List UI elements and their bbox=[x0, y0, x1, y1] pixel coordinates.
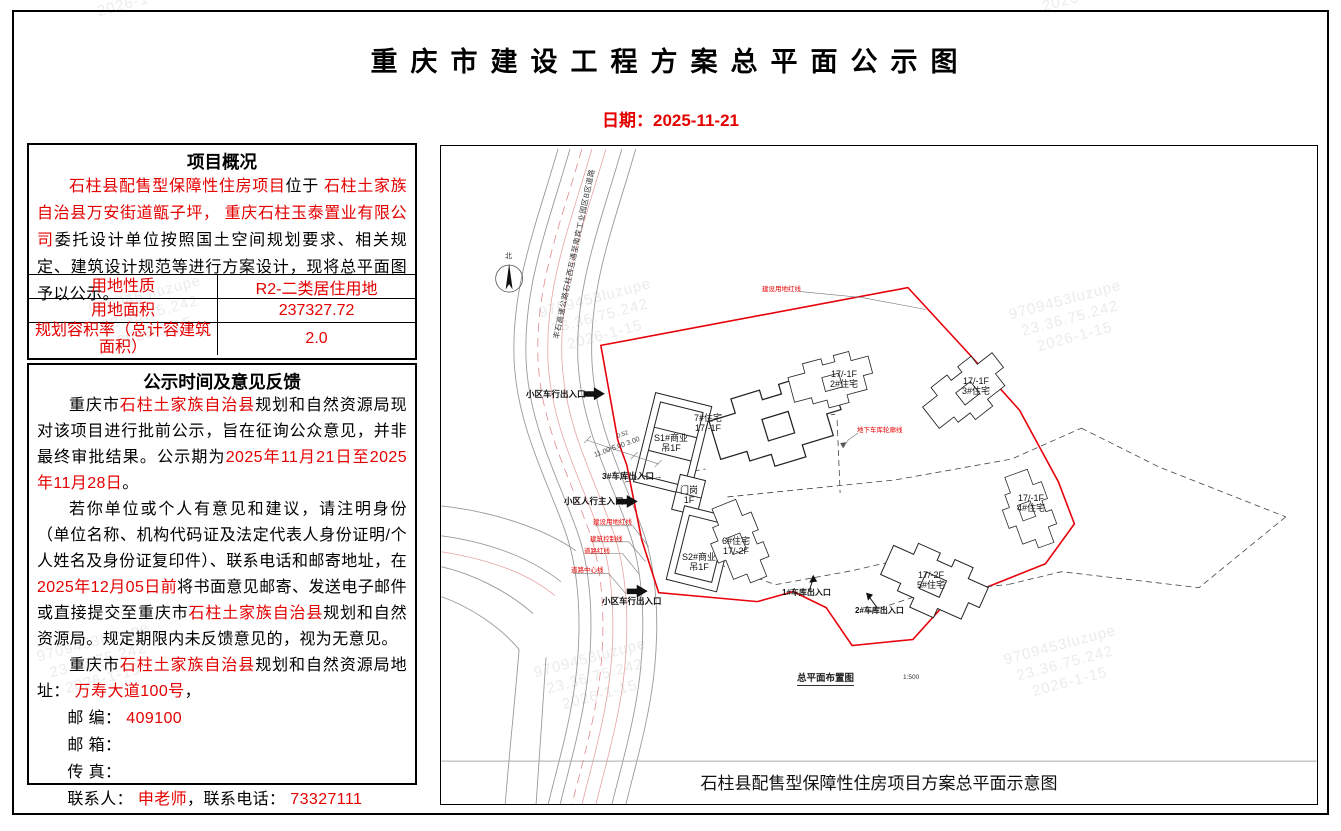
building-name: 7#住宅 bbox=[694, 413, 722, 423]
date-label: 日期：2025-11-21 bbox=[0, 106, 1341, 131]
feedback-header: 公示时间及意见反馈 bbox=[29, 365, 415, 393]
table-label: 规划容积率（总计容建筑面积） bbox=[29, 323, 218, 355]
building-floors: 17/-2F bbox=[722, 546, 750, 556]
line-label-site-redline: 建设用地红线 bbox=[593, 516, 632, 526]
text-segment: 若你单位或个人有意见和建议，请注明身份（单位名称、机构代码证及法定代表人身份证明… bbox=[37, 501, 407, 570]
building-label-7: 7#住宅 17/-1F bbox=[694, 413, 722, 433]
project-overview-header: 项目概况 bbox=[29, 145, 415, 173]
building-name: 3#住宅 bbox=[962, 386, 990, 396]
feedback-paragraph-2: 若你单位或个人有意见和建议，请注明身份（单位名称、机构代码证及法定代表人身份证明… bbox=[29, 497, 415, 653]
watermark-line: 23.36.75.242 bbox=[995, 0, 1154, 8]
table-value: 2.0 bbox=[218, 323, 415, 355]
text-segment: 重庆市 bbox=[69, 397, 120, 414]
entrance-label-vehicle-bottom: 小区车行出入口 bbox=[602, 595, 662, 607]
postcode-line: 邮 编： 409100 bbox=[29, 705, 415, 732]
building-floors: 17/-1F bbox=[694, 423, 722, 433]
building-label-6: 6#住宅 17/-2F bbox=[722, 536, 750, 556]
site-plan-caption: 石柱县配售型保障性住房项目方案总平面示意图 bbox=[441, 769, 1317, 794]
road-redline-pink bbox=[441, 149, 626, 804]
building-label-gatehouse: 门岗 1F bbox=[680, 485, 698, 505]
line-label-building-control: 建筑控制线 bbox=[590, 533, 623, 543]
email-line: 邮 箱： bbox=[29, 732, 415, 759]
building-label-2: 17/-1F 2#住宅 bbox=[830, 369, 858, 389]
page-title: 重庆市建设工程方案总平面公示图 bbox=[0, 40, 1341, 79]
plan-drawing-scale: 1:500 bbox=[903, 674, 919, 681]
feedback-paragraph-1: 重庆市石柱土家族自治县规划和自然资源局现对该项目进行批前公示，旨在征询公众意见，… bbox=[29, 393, 415, 497]
feedback-panel: 公示时间及意见反馈 重庆市石柱土家族自治县规划和自然资源局现对该项目进行批前公示… bbox=[27, 363, 417, 785]
fax-line: 传 真： bbox=[29, 759, 415, 786]
building-label-5: 17/-2F 5#住宅 bbox=[917, 570, 945, 590]
vehicle-entrance-arrow-top bbox=[584, 387, 605, 400]
building-floors: 17/-1F bbox=[962, 376, 990, 386]
text-segment: 。 bbox=[122, 475, 138, 492]
table-row: 规划容积率（总计容建筑面积） 2.0 bbox=[29, 323, 415, 355]
table-label: 用地性质 bbox=[29, 275, 218, 298]
building-label-3: 17/-1F 3#住宅 bbox=[962, 376, 990, 396]
building-floors: 17/-1F bbox=[1017, 493, 1045, 503]
text-segment: 万寿大道100号 bbox=[75, 683, 185, 700]
notice-page: 重庆市建设工程方案总平面公示图 日期：2025-11-21 项目概况 石柱县配售… bbox=[0, 0, 1341, 831]
entrance-label-garage-2: 2#车库出入口 bbox=[855, 605, 904, 616]
text-segment: 石柱土家族自治县 bbox=[120, 397, 255, 414]
building-label-4: 17/-1F 4#住宅 bbox=[1017, 493, 1045, 513]
landuse-table: 用地性质 R2-二类居住用地 用地面积 237327.72 规划容积率（总计容建… bbox=[29, 274, 415, 358]
contact-person-line: 联系人： 申老师，联系电话： 73327111 bbox=[29, 786, 415, 813]
line-label-road-redline: 道路红线 bbox=[584, 545, 610, 555]
building-floors: 1F bbox=[680, 495, 698, 505]
building-floors: 17/-2F bbox=[917, 570, 945, 580]
building-label-s1: S1#商业 吊1F bbox=[654, 433, 688, 453]
line-label-road-centerline: 道路中心线 bbox=[571, 564, 604, 574]
entrance-label-garage-3: 3#车库出入口→ bbox=[602, 470, 662, 482]
building-name: S1#商业 bbox=[654, 433, 688, 443]
building-label-s2: S2#商业 吊1F bbox=[682, 552, 716, 572]
text-segment: 石柱土家族自治县 bbox=[120, 657, 255, 674]
text-segment: ， bbox=[185, 683, 201, 700]
table-value: 237327.72 bbox=[218, 299, 415, 322]
building-name: 2#住宅 bbox=[830, 379, 858, 389]
text-segment: 2025年12月05日前 bbox=[37, 579, 177, 596]
garage-outline-label: 地下车库轮廓线 bbox=[857, 424, 903, 434]
text-segment: 石柱县配售型保障性住房项目 bbox=[69, 178, 286, 195]
building-name: 5#住宅 bbox=[917, 580, 945, 590]
text-segment: 申老师 bbox=[138, 791, 187, 808]
text-segment: 传 真： bbox=[67, 764, 121, 781]
building-floors: 17/-1F bbox=[830, 369, 858, 379]
north-label: 北 bbox=[505, 251, 512, 261]
text-segment: 位于 bbox=[286, 178, 324, 195]
building-name: 门岗 bbox=[680, 485, 698, 495]
building-name: S2#商业 bbox=[682, 552, 716, 562]
building-name: 4#住宅 bbox=[1017, 503, 1045, 513]
building-floors: 吊1F bbox=[654, 443, 688, 453]
text-segment: ，联系电话： bbox=[187, 791, 290, 808]
table-row: 用地面积 237327.72 bbox=[29, 299, 415, 323]
project-overview-panel: 项目概况 石柱县配售型保障性住房项目位于 石柱土家族自治县万安街道甑子坪， 重庆… bbox=[27, 143, 417, 360]
entrance-label-pedestrian: 小区人行主入口 bbox=[564, 495, 624, 507]
north-compass bbox=[496, 264, 523, 292]
boundary-redline-label: 建设用地红线 bbox=[762, 283, 801, 293]
table-label: 用地面积 bbox=[29, 299, 218, 322]
text-segment: 联系人： bbox=[67, 791, 137, 808]
table-row: 用地性质 R2-二类居住用地 bbox=[29, 275, 415, 299]
entrance-label-garage-1: 1#车库出入口 bbox=[782, 587, 831, 598]
plan-drawing-title: 总平面布置图 bbox=[797, 670, 854, 686]
text-segment: 重庆市 bbox=[69, 657, 120, 674]
text-segment: 73327111 bbox=[290, 791, 362, 808]
feedback-paragraph-3: 重庆市石柱土家族自治县规划和自然资源局地址： 万寿大道100号， bbox=[29, 653, 415, 705]
building-floors: 吊1F bbox=[682, 562, 716, 572]
text-segment: 石柱土家族自治县 bbox=[189, 605, 324, 622]
text-segment: 409100 bbox=[126, 710, 182, 727]
building-name: 6#住宅 bbox=[722, 536, 750, 546]
text-segment: 邮 编： bbox=[67, 710, 126, 727]
text-segment: 邮 箱： bbox=[67, 737, 121, 754]
table-value: R2-二类居住用地 bbox=[218, 275, 415, 298]
entrance-label-vehicle-top: 小区车行出入口 bbox=[526, 388, 586, 400]
site-plan-panel: 丰石高速公路石柱西互通至南宾工业园区B区道路 北 建设用地红线 地下车库轮廓线 … bbox=[440, 145, 1318, 805]
